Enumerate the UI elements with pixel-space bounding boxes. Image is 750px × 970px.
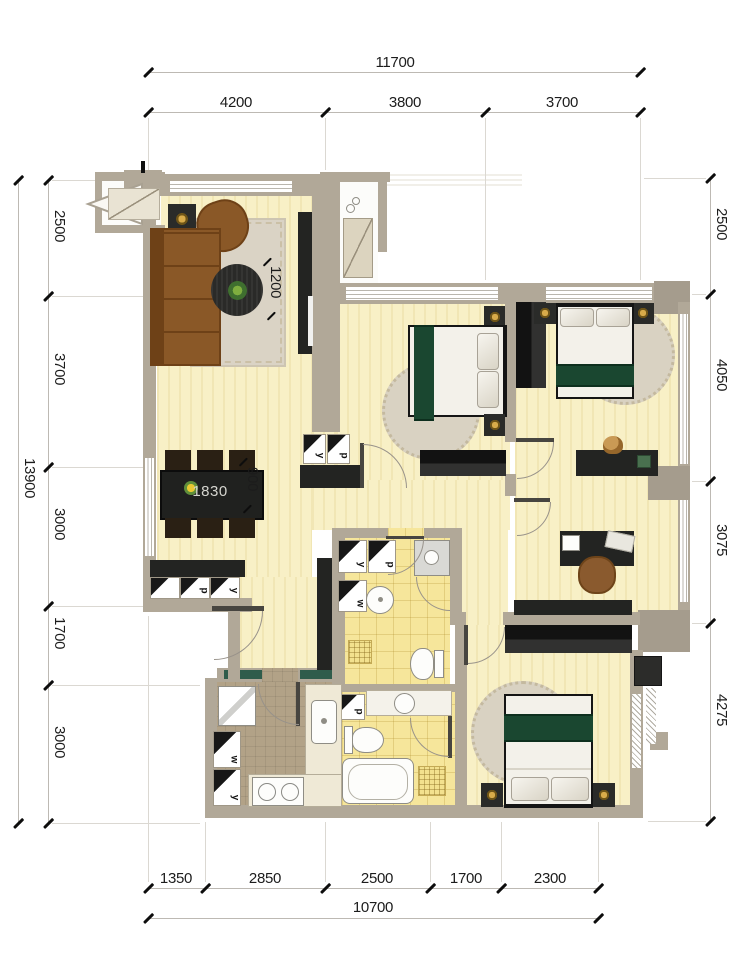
- pillow: [477, 333, 499, 370]
- dim-left-seg: 1700: [52, 617, 67, 649]
- sideboard: [150, 560, 245, 577]
- door-letter: y: [356, 562, 367, 568]
- dim-line: [710, 178, 711, 821]
- bedroom3-side-window: [632, 694, 641, 768]
- monitor: [562, 535, 580, 551]
- bed-fold-line: [506, 768, 591, 770]
- closet-door: p: [327, 434, 350, 464]
- ext-line: [644, 178, 706, 179]
- sofa: [150, 228, 221, 366]
- ext-line: [501, 822, 502, 882]
- bedroom2-side-window: [680, 314, 688, 464]
- closet-base: [300, 465, 362, 488]
- bedroom2-window: [546, 287, 652, 300]
- dining-chair: [165, 450, 191, 470]
- wall: [505, 474, 516, 496]
- dining-chair: [197, 450, 223, 470]
- ext-line: [205, 822, 206, 882]
- dim-right-seg: 4275: [714, 694, 729, 726]
- office-chair: [578, 556, 616, 594]
- flue-hatch: [646, 688, 656, 744]
- ext-line: [52, 467, 143, 468]
- vase: [603, 436, 623, 454]
- dim-top-seg: 4200: [176, 95, 296, 110]
- niche-knob: [346, 204, 355, 213]
- bed-runner: [556, 364, 634, 387]
- lamp: [488, 418, 502, 432]
- dim-bottom-seg: 2500: [347, 871, 407, 886]
- door-letter: y: [315, 453, 326, 459]
- wardrobe: [505, 625, 632, 653]
- ext-line: [692, 481, 706, 482]
- pillow: [596, 308, 630, 327]
- kitchen-cabinet-door: y: [213, 769, 241, 806]
- ext-line: [325, 118, 326, 170]
- toilet: [352, 727, 384, 753]
- wall: [450, 528, 462, 625]
- dim-line: [148, 888, 598, 889]
- table-length-label: 1830: [168, 483, 252, 500]
- ext-line: [648, 821, 706, 822]
- pillow: [551, 777, 589, 801]
- dim-top-total: 11700: [320, 55, 470, 70]
- ext-line: [148, 118, 149, 170]
- decor-box: [637, 455, 651, 468]
- door-letter: p: [353, 708, 364, 714]
- dim-bottom-seg: 1700: [436, 871, 496, 886]
- ext-line: [52, 296, 143, 297]
- porch-marker: [141, 161, 145, 173]
- ext-line: [52, 685, 200, 686]
- dining-chair: [197, 518, 223, 538]
- door-letter: w: [355, 600, 366, 608]
- kitchen-doorway: [262, 668, 298, 682]
- washbasin: [394, 693, 415, 714]
- corridor-floor: [455, 530, 508, 625]
- lamp: [538, 306, 552, 320]
- lamp: [488, 310, 502, 324]
- bath-closet-door: w: [338, 580, 367, 612]
- dining-window: [145, 458, 154, 556]
- toilet: [410, 648, 434, 680]
- burner: [281, 783, 299, 801]
- dim-right-seg: 3075: [714, 524, 729, 556]
- table-width-label: 900: [245, 467, 260, 491]
- wall: [312, 176, 340, 432]
- study-cabinet: [514, 600, 632, 615]
- floor-drain: [418, 766, 446, 796]
- entry-door-leaf: [108, 188, 160, 220]
- dim-line: [48, 180, 49, 823]
- dim-line: [148, 112, 640, 113]
- bath-closet-door: y: [338, 540, 367, 573]
- bed-runner: [414, 325, 434, 421]
- dim-bottom-total: 10700: [333, 900, 413, 915]
- lamp: [485, 788, 499, 802]
- wall: [378, 182, 387, 252]
- door-letter: p: [338, 452, 349, 458]
- lower-pillar: [638, 610, 690, 652]
- dim-left-total: 13900: [22, 458, 37, 498]
- bathtub-inner: [348, 764, 408, 800]
- ext-line: [430, 822, 431, 882]
- lamp: [636, 306, 650, 320]
- toilet-tank: [434, 650, 444, 678]
- floor-plan: 1830 p y y p y p: [0, 0, 750, 970]
- bedroom1-window: [346, 287, 498, 300]
- dim-left-seg: 3000: [52, 726, 67, 758]
- ext-line: [52, 823, 200, 824]
- sideboard-door: y: [210, 577, 240, 599]
- dining-chair: [165, 518, 191, 538]
- dim-right-seg: 4050: [714, 359, 729, 391]
- ext-line: [148, 616, 149, 882]
- ext-line: [692, 623, 706, 624]
- lamp: [597, 788, 611, 802]
- ext-line: [325, 822, 326, 882]
- dim-top-seg: 3700: [502, 95, 622, 110]
- study-window: [680, 496, 688, 602]
- living-depth-label: 1200: [268, 266, 283, 298]
- door-letter: y: [229, 588, 240, 594]
- ext-line: [52, 180, 95, 181]
- fridge: [218, 686, 256, 726]
- ext-line: [485, 118, 486, 280]
- dim-left-seg: 2500: [52, 210, 67, 242]
- table-lamp: [174, 211, 190, 227]
- tv: [308, 296, 313, 346]
- faucet: [321, 718, 327, 724]
- wardrobe: [420, 450, 506, 476]
- dim-bottom-seg: 2300: [520, 871, 580, 886]
- ac-unit: [634, 656, 662, 686]
- dim-bottom-seg: 1350: [146, 871, 206, 886]
- closet-door: y: [303, 434, 326, 464]
- basin-drain: [378, 597, 383, 602]
- sideboard-door: [150, 577, 180, 599]
- door-letter: w: [229, 756, 240, 764]
- dim-line: [18, 180, 19, 823]
- pillow: [511, 777, 549, 801]
- ext-line: [692, 294, 706, 295]
- ext-line: [52, 606, 143, 607]
- door-letter: y: [230, 795, 241, 801]
- pillow: [477, 371, 499, 408]
- ext-line: [640, 118, 641, 280]
- hall-cabinet: [317, 558, 332, 670]
- sideboard-door: p: [180, 577, 210, 599]
- living-window: [170, 181, 292, 192]
- kitchen-window-green: [300, 670, 336, 679]
- dim-right-seg: 2500: [714, 208, 729, 240]
- kitchen-cabinet-door: w: [213, 731, 241, 768]
- bed-runner: [504, 714, 593, 742]
- niche-cabinet: [343, 218, 373, 278]
- niche-knob: [352, 197, 360, 205]
- pillow: [560, 308, 594, 327]
- dim-bottom-seg: 2850: [235, 871, 295, 886]
- burner: [258, 783, 276, 801]
- bath-cabinet-door: p: [338, 694, 365, 720]
- toilet-tank: [344, 726, 353, 754]
- dim-line: [148, 72, 640, 73]
- dim-top-seg: 3800: [345, 95, 465, 110]
- dim-left-seg: 3000: [52, 508, 67, 540]
- bedroom3-doorway: [466, 612, 503, 625]
- dim-left-seg: 3700: [52, 353, 67, 385]
- shower-head: [424, 550, 439, 565]
- dim-line: [148, 918, 598, 919]
- door-letter: p: [198, 587, 209, 593]
- floor-drain: [348, 640, 372, 664]
- dining-chair: [229, 518, 255, 538]
- ext-line: [598, 822, 599, 882]
- roof-ledge: [386, 172, 522, 186]
- plant: [228, 281, 247, 300]
